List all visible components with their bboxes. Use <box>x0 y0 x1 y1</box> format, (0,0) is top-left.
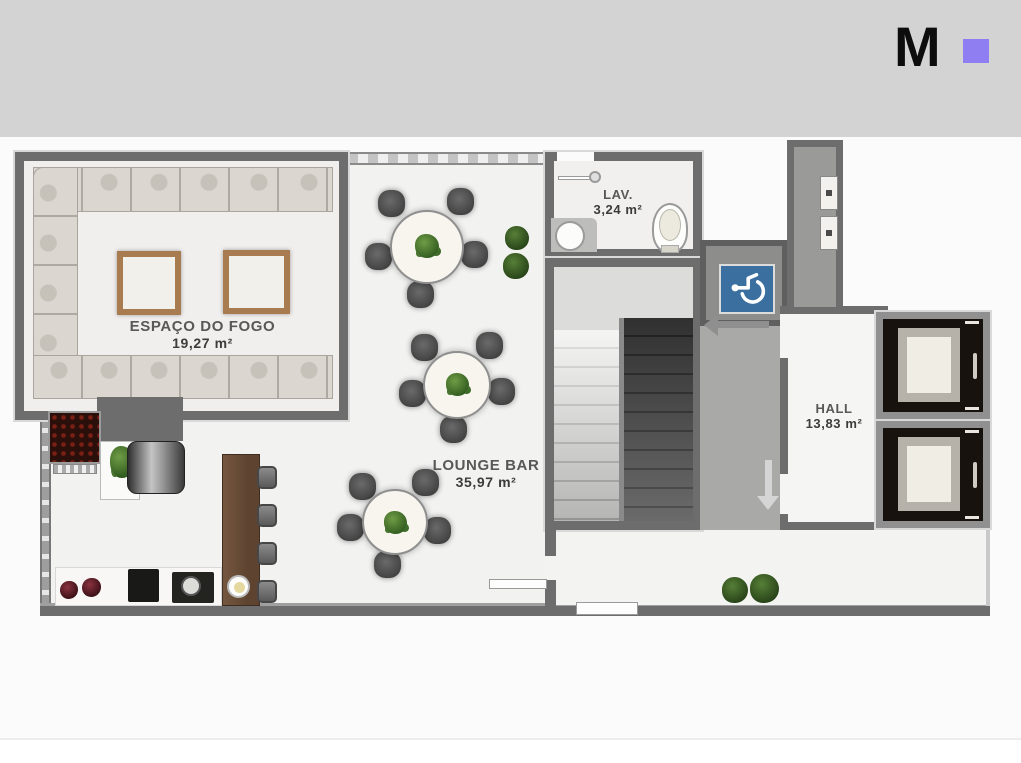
chair <box>476 332 503 359</box>
bar-sink-basin <box>234 582 245 593</box>
espaco-area: 19,27 m² <box>60 335 345 351</box>
wheelchair-icon <box>728 267 766 311</box>
bar-stool <box>257 542 277 565</box>
arrow-down-icon <box>757 460 779 512</box>
lav-door-opening <box>557 152 594 161</box>
toilet-seat <box>659 209 681 241</box>
floor-plan: ESPAÇO DO FOGO 19,27 m² LOUNGE BAR 35,97… <box>0 0 1021 763</box>
chair <box>440 416 467 443</box>
elevator-cab <box>876 421 990 528</box>
chair <box>447 188 474 215</box>
fire-pit-table <box>117 251 181 315</box>
table-plant-icon <box>446 373 469 396</box>
grill-grate <box>53 464 97 474</box>
table-plant-icon <box>415 234 439 258</box>
lav-room-label: LAV. 3,24 m² <box>580 188 656 218</box>
chair <box>407 281 434 308</box>
chair <box>365 243 392 270</box>
stair-flight-down <box>623 318 693 521</box>
chair <box>411 334 438 361</box>
chimney-block <box>97 397 183 441</box>
toilet-base <box>661 245 679 253</box>
chair <box>424 517 451 544</box>
cooktop <box>128 569 159 602</box>
sink-pot <box>181 576 201 596</box>
lounge-shrub-icon <box>503 253 529 279</box>
lav-name: LAV. <box>580 188 656 203</box>
washbasin-icon <box>555 221 585 251</box>
fire-pit-table <box>223 250 290 314</box>
chair <box>461 241 488 268</box>
terrace-shrub-icon <box>722 577 748 603</box>
sofa-sectional-top <box>33 167 333 212</box>
bar-stool <box>257 466 277 489</box>
hall-room-label: HALL 13,83 m² <box>794 402 874 432</box>
lounge-shrub-icon <box>505 226 529 250</box>
partition-gap <box>545 556 556 580</box>
terrace-right-rail <box>986 528 990 606</box>
lounge-name: LOUNGE BAR <box>410 457 562 474</box>
sofa-sectional-bottom <box>33 355 333 399</box>
arrow-left-icon <box>704 314 774 336</box>
table-plant-icon <box>384 511 407 534</box>
hall-area: 13,83 m² <box>794 417 874 432</box>
accessible-sign <box>719 264 775 314</box>
chair <box>349 473 376 500</box>
utility-panel <box>820 176 838 210</box>
hall-door-gap <box>780 474 788 514</box>
chair <box>337 514 364 541</box>
hall-name: HALL <box>794 402 874 417</box>
grill <box>48 411 101 464</box>
espaco-name: ESPAÇO DO FOGO <box>60 318 345 335</box>
espaco-room-label: ESPAÇO DO FOGO 19,27 m² <box>60 318 345 351</box>
lounge-room-label: LOUNGE BAR 35,97 m² <box>410 457 562 490</box>
bar-stool <box>257 580 277 603</box>
elevator-cab <box>876 312 990 419</box>
stair-divider <box>619 318 624 521</box>
sliding-door <box>489 579 547 589</box>
chair <box>488 378 515 405</box>
terrace-shrub-icon <box>750 574 779 603</box>
lav-area: 3,24 m² <box>580 203 656 218</box>
lounge-window-wall <box>348 152 545 165</box>
utility-panel <box>820 216 838 250</box>
bar-stool <box>257 504 277 527</box>
chair <box>399 380 426 407</box>
lav-door-knob <box>589 171 601 183</box>
hall-door-gap <box>780 314 788 358</box>
lounge-area: 35,97 m² <box>410 474 562 490</box>
chair <box>378 190 405 217</box>
chair <box>374 551 401 578</box>
terrace-door <box>576 602 638 615</box>
stair-flight-up <box>554 330 623 521</box>
fire-pit-cylinder <box>127 441 185 494</box>
